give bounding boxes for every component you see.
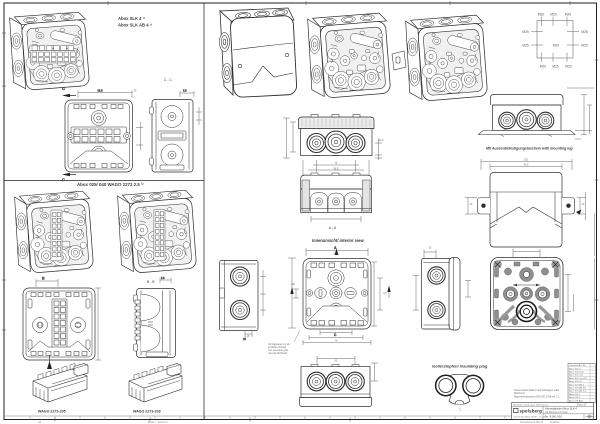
svg-text:5.5: 5.5 [183,89,187,93]
svg-text:M25: M25 [522,43,529,47]
svg-text:Bearbeitet 12.04. gepr. Name: Bearbeitet 12.04. gepr. Name Datum [513,404,549,407]
svg-text:M25: M25 [552,65,559,69]
svg-text:Abox SLK 4-25: Abox SLK 4-25 [569,371,584,374]
svg-text:B - B: B - B [147,280,155,284]
svg-text:Abox SLK AB 4-5: Abox SLK AB 4-5 [569,387,587,390]
svg-text:Vorzugsweise nur als: Vorzugsweise nur als [268,343,291,346]
svg-text:Schutzvermerk DIN 34: Schutzvermerk DIN 34 [520,421,544,424]
svg-text:102: 102 [524,159,529,162]
svg-text:Innenansicht/ interior view: Innenansicht/ interior view [312,238,364,243]
svg-text:M25: M25 [581,30,588,34]
svg-text:Abox SLK 4: Abox SLK 4 [569,367,581,370]
svg-text:WAGO 2273-205: WAGO 2273-205 [38,410,66,414]
svg-text:Abox 025/ 040 WAGO 2273 2.5 ¹⁾: Abox 025/ 040 WAGO 2273 2.5 ¹⁾ [77,182,143,187]
svg-text:Abox SLK 4 L: Abox SLK 4 L [569,380,583,383]
svg-text:96.5: 96.5 [97,89,103,93]
svg-text:Allgemeintoleranzen DIN ISO 27: Allgemeintoleranzen DIN ISO 2768-mK 1:1 [514,395,560,398]
svg-text:5.5: 5.5 [161,276,165,280]
svg-text:96.5: 96.5 [524,164,529,167]
svg-text:96.5: 96.5 [334,253,339,256]
svg-text:M20: M20 [550,13,557,17]
svg-text:A - A: A - A [329,226,337,230]
svg-text:Nr. 8160 010: Nr. 8160 010 [545,415,563,419]
svg-text:96.5: 96.5 [334,167,339,170]
svg-text:M20: M20 [540,65,547,69]
svg-text:Abox 025 AB-L: Abox 025 AB-L [569,399,584,402]
svg-text:12.5: 12.5 [379,139,384,142]
svg-text:C - C: C - C [164,78,172,82]
svg-text:Abox SLK 4 ¹⁾: Abox SLK 4 ¹⁾ [118,16,145,21]
svg-text:spelsberg: spelsberg [520,409,543,414]
svg-text:Varianten Art.-Nr.: Varianten Art.-Nr. [569,364,586,367]
svg-text:Abox SLK 4 gr: Abox SLK 4 gr [569,374,583,377]
svg-text:mit Klemme 2.5 mm2: mit Klemme 2.5 mm2 [545,411,568,414]
svg-text:M20: M20 [538,13,545,17]
svg-text:zum Leerrohre grau: zum Leerrohre grau [268,349,289,352]
svg-text:Isolierstopfen/ insulating plu: Isolierstopfen/ insulating plug [432,364,488,369]
svg-text:Mit Aussenbefestigungslaschen/: Mit Aussenbefestigungslaschen/ with moun… [486,147,573,151]
svg-text:Abox SLK AB 4 ¹⁾: Abox SLK AB 4 ¹⁾ [118,23,152,28]
svg-text:102: 102 [291,283,296,286]
svg-text:C: C [62,177,65,182]
svg-text:M20: M20 [553,44,560,48]
svg-text:B: B [42,277,45,281]
svg-text:an Boden/ Deckel: an Boden/ Deckel [268,347,287,349]
svg-text:WAGO 2273-203: WAGO 2273-203 [133,410,161,414]
svg-text:C: C [62,86,65,91]
svg-text:M25: M25 [581,43,588,47]
svg-text:M25: M25 [522,30,529,34]
svg-text:oder als Dichtstopf: oder als Dichtstopf [268,352,287,355]
svg-text:M20: M20 [565,13,572,17]
svg-text:Abox SLK 4 ws/25: Abox SLK 4 ws/25 [569,377,588,380]
svg-text:Guenter Spelsberg GmbH + Co. K: Guenter Spelsberg GmbH + Co. KG [514,416,546,419]
svg-text:M20: M20 [565,65,572,69]
svg-text:Blatt: Blatt [579,404,584,407]
svg-text:Abox SLK AB 4 gr: Abox SLK AB 4 gr [569,390,587,393]
svg-text:Abox SLK AB 4: Abox SLK AB 4 [569,383,585,386]
svg-text:Abox 025-L: Abox 025-L [569,393,581,396]
svg-text:Abox 040-L: Abox 040-L [569,396,581,399]
